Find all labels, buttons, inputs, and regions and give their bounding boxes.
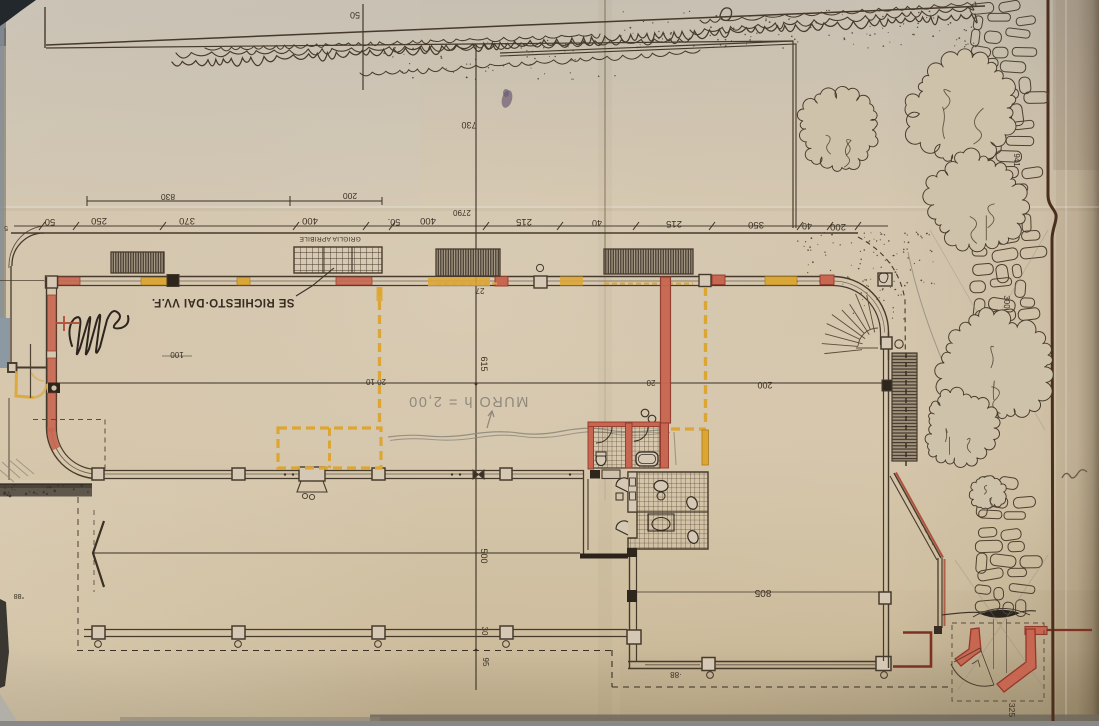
svg-text:5: 5 <box>4 224 8 231</box>
svg-text:250: 250 <box>91 215 107 226</box>
svg-text:50: 50 <box>45 216 56 227</box>
svg-text:325: 325 <box>1007 703 1017 717</box>
svg-text:370: 370 <box>179 215 195 226</box>
svg-text:30: 30 <box>480 627 489 636</box>
svg-text:500: 500 <box>479 548 489 563</box>
svg-text:95: 95 <box>481 658 490 667</box>
svg-text:MURO h = 2,00: MURO h = 2,00 <box>408 393 529 409</box>
svg-text:2790: 2790 <box>453 208 471 217</box>
svg-text:100: 100 <box>170 350 184 359</box>
svg-text:200: 200 <box>830 221 846 232</box>
svg-text:20 10: 20 10 <box>365 377 386 386</box>
svg-text:40: 40 <box>592 218 602 228</box>
svg-text:27: 27 <box>475 286 484 295</box>
svg-text:400: 400 <box>420 215 436 226</box>
svg-text:·88: ·88 <box>670 670 682 679</box>
svg-text:615: 615 <box>479 356 489 371</box>
svg-text:50.: 50. <box>388 217 401 227</box>
svg-text:215: 215 <box>666 218 682 229</box>
svg-text:°88: °88 <box>14 592 25 600</box>
svg-text:400: 400 <box>302 215 318 226</box>
svg-text:805: 805 <box>754 587 771 598</box>
svg-text:20: 20 <box>646 378 655 387</box>
svg-text:SE RICHIESTO·DAI VV.F.: SE RICHIESTO·DAI VV.F. <box>152 296 295 308</box>
svg-text:941: 941 <box>1012 153 1021 167</box>
svg-text:50: 50 <box>350 10 360 20</box>
svg-text:215: 215 <box>516 216 532 227</box>
svg-text:730: 730 <box>461 120 476 130</box>
svg-text:200: 200 <box>757 380 772 390</box>
svg-text:350: 350 <box>748 219 764 230</box>
svg-text:830: 830 <box>161 192 175 202</box>
svg-text:40: 40 <box>802 221 812 231</box>
svg-text:200: 200 <box>343 191 357 201</box>
svg-text:GRIGLIA APRIBILE: GRIGLIA APRIBILE <box>299 235 361 242</box>
